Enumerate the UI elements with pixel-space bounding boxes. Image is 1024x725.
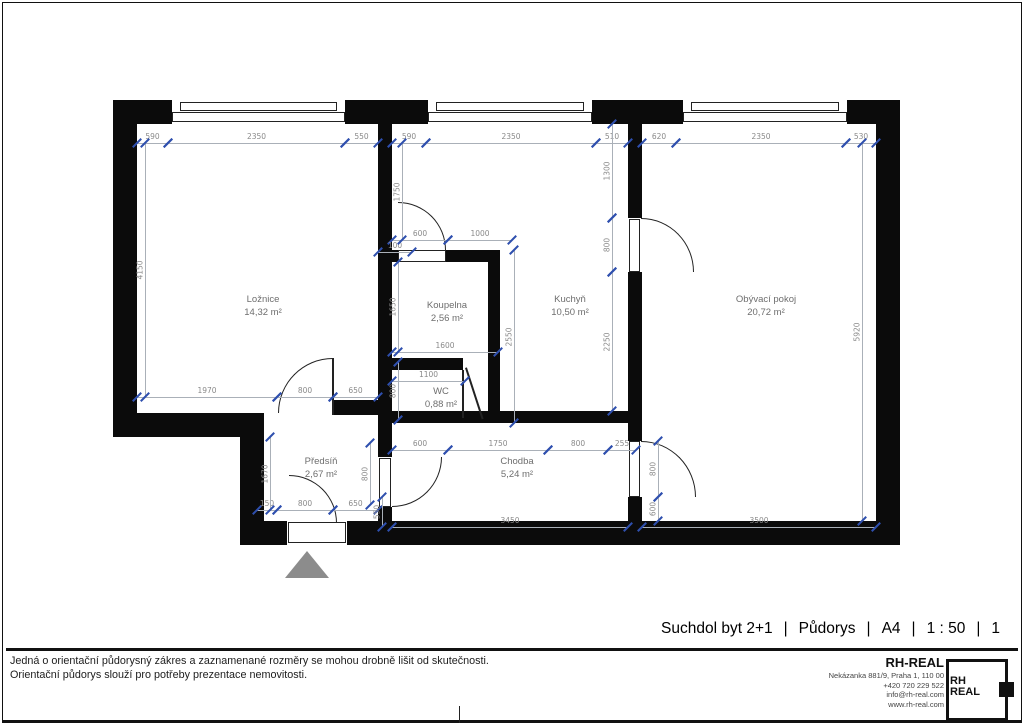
dimension-label: 1300	[603, 161, 612, 180]
title-separator: |	[912, 620, 916, 637]
dimension-line	[862, 143, 863, 521]
wall	[378, 124, 392, 423]
company-info: RH-REAL Nekázanka 881/9, Praha 1, 110 00…	[829, 655, 944, 709]
dimension-line	[612, 272, 613, 411]
dimension-line	[658, 441, 659, 497]
dimension-line	[392, 381, 465, 382]
dimension-label: 2350	[501, 132, 520, 141]
door-line	[462, 370, 464, 418]
dimension-label: 1750	[488, 439, 507, 448]
wall	[392, 358, 463, 370]
logo-text: RH REAL	[950, 676, 980, 698]
dimension-label: 800	[298, 499, 312, 508]
window-frame	[691, 102, 839, 111]
dimension-label: 3450	[500, 516, 519, 525]
dimension-line	[370, 443, 371, 505]
room-label: Chodba5,24 m²	[500, 455, 533, 481]
dimension-label: 2250	[603, 332, 612, 351]
window-frame	[428, 112, 592, 122]
room-label: Kuchyň10,50 m²	[551, 293, 589, 319]
company-name: RH-REAL	[829, 655, 944, 670]
door-arc-icon	[641, 218, 694, 272]
door-arc-icon	[289, 475, 337, 523]
door-arc-icon	[398, 202, 446, 250]
dimension-label: 800	[571, 439, 585, 448]
dimension-line	[392, 450, 448, 451]
dimension-line	[392, 352, 498, 353]
company-logo: RH REAL	[946, 659, 1008, 721]
title-block: Suchdol byt 2+1|Půdorys|A4|1 : 50|1	[661, 620, 1000, 638]
door-leaf	[629, 219, 640, 272]
title-separator: |	[867, 620, 871, 637]
dimension-line	[137, 397, 277, 398]
dimension-label: 1670	[261, 464, 270, 483]
dimension-line	[402, 143, 403, 240]
title-item: Suchdol byt 2+1	[661, 620, 773, 637]
dimension-line	[277, 510, 333, 511]
wall	[488, 250, 500, 423]
door-line	[332, 358, 334, 415]
dimension-line	[270, 437, 271, 510]
door-arc-icon	[392, 457, 442, 507]
dimension-label: 600	[413, 439, 427, 448]
dimension-label: 1970	[197, 386, 216, 395]
room-label: Koupelna2,56 m²	[427, 299, 467, 325]
dimension-line	[612, 218, 613, 272]
dimension-label: 4150	[136, 260, 145, 279]
dimension-line	[378, 252, 412, 253]
company-web: www.rh-real.com	[829, 700, 944, 710]
dimension-line	[642, 143, 676, 144]
wall	[628, 497, 642, 521]
wall	[347, 521, 900, 545]
dimension-label: 1600	[435, 341, 454, 350]
room-name: Chodba	[500, 455, 533, 468]
room-area: 14,32 m²	[244, 306, 282, 319]
window-frame	[436, 102, 584, 111]
dimension-label: 800	[603, 238, 612, 252]
dimension-line	[448, 240, 512, 241]
dimension-label: 5920	[853, 322, 862, 341]
floorplan-canvas: 5902350550590235051062023505306001000100…	[0, 0, 1024, 615]
dimension-line	[642, 527, 876, 528]
dimension-label: 650	[348, 386, 362, 395]
wall	[876, 100, 900, 545]
room-area: 10,50 m²	[551, 306, 589, 319]
room-area: 5,24 m²	[500, 468, 533, 481]
room-area: 0,88 m²	[425, 398, 457, 411]
dimension-line	[448, 450, 548, 451]
page-center-mark	[459, 706, 460, 723]
title-item: 1 : 50	[927, 620, 966, 637]
dimension-label: 620	[652, 132, 666, 141]
dimension-line	[398, 362, 399, 420]
dimension-label: 800	[649, 462, 658, 476]
dimension-line	[168, 143, 345, 144]
room-name: Obývací pokoj	[736, 293, 796, 306]
window-frame	[683, 112, 847, 122]
dimension-label: 1650	[389, 297, 398, 316]
dimension-label: 800	[389, 384, 398, 398]
footer-divider	[6, 648, 1018, 651]
disclaimer: Jedná o orientační půdorysný zákres a za…	[10, 654, 489, 682]
dimension-label: 2350	[247, 132, 266, 141]
title-item: 1	[991, 620, 1000, 637]
room-area: 2,67 m²	[305, 468, 338, 481]
room-label: WC0,88 m²	[425, 385, 457, 411]
wall	[113, 100, 137, 437]
room-area: 2,56 m²	[427, 312, 467, 325]
room-area: 20,72 m²	[736, 306, 796, 319]
dimension-line	[514, 250, 515, 423]
company-address: Nekázanka 881/9, Praha 1, 110 00	[829, 671, 944, 681]
dimension-label: 1000	[470, 229, 489, 238]
room-name: Předsíň	[305, 455, 338, 468]
window-frame	[172, 112, 345, 122]
window-frame	[180, 102, 337, 111]
wall	[628, 423, 642, 441]
dimension-line	[333, 510, 378, 511]
logo-square-icon	[999, 682, 1014, 697]
title-item: Půdorys	[799, 620, 856, 637]
dimension-label: 1100	[419, 370, 438, 379]
dimension-line	[392, 527, 628, 528]
room-name: Kuchyň	[551, 293, 589, 306]
dimension-label: 1750	[393, 182, 402, 201]
dimension-label: 2350	[751, 132, 770, 141]
room-label: Obývací pokoj20,72 m²	[736, 293, 796, 319]
dimension-label: 600	[413, 229, 427, 238]
door-leaf	[288, 522, 346, 543]
door-leaf	[379, 458, 391, 507]
title-separator: |	[784, 620, 788, 637]
dimension-line	[612, 124, 613, 218]
dimension-line	[398, 262, 399, 352]
room-name: Ložnice	[244, 293, 282, 306]
dimension-label: 3500	[749, 516, 768, 525]
company-email: info@rh-real.com	[829, 690, 944, 700]
disclaimer-line-2: Orientační půdorys slouží pro potřeby pr…	[10, 668, 489, 682]
dimension-label: 2550	[505, 327, 514, 346]
dimension-line	[676, 143, 846, 144]
disclaimer-line-1: Jedná o orientační půdorysný zákres a za…	[10, 654, 489, 668]
room-name: WC	[425, 385, 457, 398]
dimension-label: 255	[615, 439, 629, 448]
title-item: A4	[882, 620, 901, 637]
wall	[628, 272, 642, 423]
dimension-line	[382, 497, 383, 527]
dimension-label: 650	[348, 499, 362, 508]
dimension-line	[392, 143, 426, 144]
dimension-line	[145, 143, 146, 397]
entrance-marker-icon	[285, 551, 329, 578]
dimension-label: 600	[649, 502, 658, 516]
dimension-line	[333, 397, 378, 398]
dimension-line	[548, 450, 608, 451]
dimension-line	[345, 143, 378, 144]
room-label: Předsíň2,67 m²	[305, 455, 338, 481]
dimension-label: 550	[373, 505, 382, 519]
dimension-line	[426, 143, 596, 144]
company-phone: +420 720 229 522	[829, 681, 944, 691]
title-separator: |	[976, 620, 980, 637]
dimension-label: 800	[298, 386, 312, 395]
room-name: Koupelna	[427, 299, 467, 312]
dimension-label: 800	[361, 467, 370, 481]
room-label: Ložnice14,32 m²	[244, 293, 282, 319]
dimension-label: 550	[354, 132, 368, 141]
dimension-line	[277, 397, 333, 398]
